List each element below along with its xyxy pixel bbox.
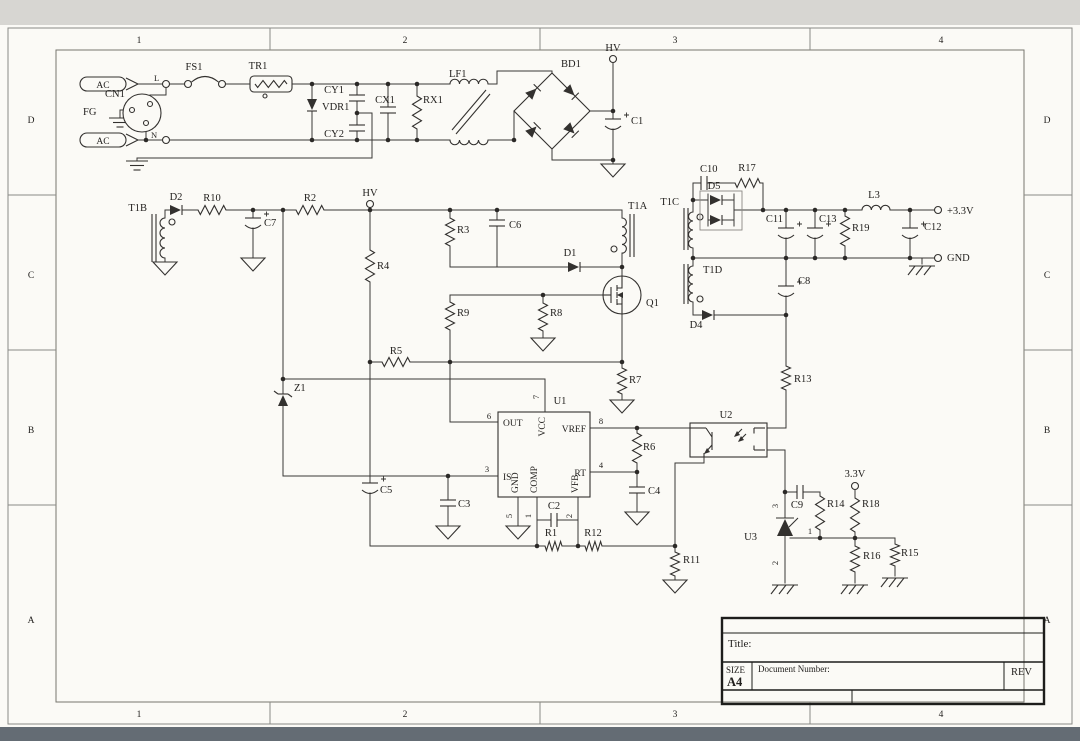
label-q1: Q1 <box>646 298 659 309</box>
label-t1c: T1C <box>660 197 679 208</box>
label-r3: R3 <box>457 225 469 236</box>
label-r5: R5 <box>390 346 402 357</box>
label-r2: R2 <box>304 193 316 204</box>
zone-label: 1 <box>137 710 142 720</box>
label-c13: C13 <box>819 214 837 225</box>
label-r19: R19 <box>852 223 870 234</box>
zone-label: C <box>28 271 34 281</box>
label-c8: C8 <box>798 276 810 287</box>
zone-label: 4 <box>939 36 944 46</box>
zone-label: 2 <box>403 710 408 720</box>
label-out_gnd: GND <box>947 253 970 264</box>
label-u1_gnd: GND <box>511 472 521 493</box>
label-term_n: N <box>151 130 157 140</box>
label-c10: C10 <box>700 164 718 175</box>
label-cx1: CX1 <box>375 95 395 106</box>
zone-label: A <box>28 616 35 626</box>
label-r1: R1 <box>545 528 557 539</box>
label-u1_vref: VREF <box>562 425 586 435</box>
label-c6: C6 <box>509 220 521 231</box>
label-u1_p5: 5 <box>504 514 514 518</box>
label-d4: D4 <box>690 320 704 331</box>
label-fg: FG <box>83 107 97 118</box>
label-u2: U2 <box>720 410 733 421</box>
label-bias_33: 3.3V <box>845 469 866 480</box>
label-hv_aux: HV <box>362 188 378 199</box>
label-cn1: CN1 <box>105 89 125 100</box>
zone-label: D <box>1044 116 1051 126</box>
label-c2: C2 <box>548 501 560 512</box>
label-r6: R6 <box>643 442 655 453</box>
label-t1b: T1B <box>128 203 147 214</box>
label-r12: R12 <box>584 528 602 539</box>
label-c7: C7 <box>264 218 276 229</box>
label-u3_p3: 3 <box>770 504 780 508</box>
label-r8: R8 <box>550 308 562 319</box>
label-out_33: +3.3V <box>947 206 974 217</box>
label-hv_bridge: HV <box>605 43 621 54</box>
label-d1: D1 <box>564 248 577 259</box>
scan-margin-bottom <box>0 727 1080 741</box>
label-u1_p6: 6 <box>487 411 491 421</box>
label-d2: D2 <box>170 192 183 203</box>
label-r7: R7 <box>629 375 641 386</box>
label-d5: D5 <box>708 181 721 192</box>
label-u3: U3 <box>744 532 757 543</box>
label-u1_vfb: VFB <box>571 475 581 493</box>
label-rx1: RX1 <box>423 95 443 106</box>
label-r10: R10 <box>203 193 221 204</box>
label-u1_p8: 8 <box>599 416 603 426</box>
label-l3: L3 <box>868 190 880 201</box>
zone-label: 2 <box>403 36 408 46</box>
label-fs1: FS1 <box>186 62 203 73</box>
schematic-scan-page: 1 2 3 4 1 2 3 4 D C B A D C B A ACACLNCN… <box>0 0 1080 741</box>
zone-label: D <box>28 116 35 126</box>
label-r15: R15 <box>901 548 919 559</box>
label-vdr1: VDR1 <box>322 102 349 113</box>
label-r9: R9 <box>457 308 469 319</box>
label-c11: C11 <box>766 214 783 225</box>
label-c9: C9 <box>791 500 803 511</box>
label-t1a: T1A <box>628 201 648 212</box>
zone-label: 3 <box>673 36 678 46</box>
label-r17: R17 <box>738 163 756 174</box>
label-u1_p2: 2 <box>564 514 574 518</box>
zone-label: C <box>1044 271 1050 281</box>
label-u3_p1: 1 <box>808 526 812 536</box>
label-z1: Z1 <box>294 383 306 394</box>
label-c3: C3 <box>458 499 470 510</box>
zone-label: B <box>1044 426 1050 436</box>
label-c4: C4 <box>648 486 661 497</box>
label-u1_p1: 1 <box>523 514 533 518</box>
document-number-label: Document Number: <box>758 664 830 674</box>
label-c5: C5 <box>380 485 392 496</box>
label-c12: C12 <box>924 222 942 233</box>
label-u1_out: OUT <box>503 419 523 429</box>
label-cy1: CY1 <box>324 85 344 96</box>
label-r18: R18 <box>862 499 880 510</box>
label-u1: U1 <box>554 396 567 407</box>
label-u3_p2: 2 <box>770 561 780 565</box>
rev-label: REV <box>1011 667 1032 678</box>
label-u1_p7: 7 <box>531 395 541 399</box>
label-u1_vcc: VCC <box>538 417 548 437</box>
zone-label: 1 <box>137 36 142 46</box>
label-r16: R16 <box>863 551 881 562</box>
zone-label: B <box>28 426 34 436</box>
schematic-canvas: 1 2 3 4 1 2 3 4 D C B A D C B A ACACLNCN… <box>0 0 1080 741</box>
label-c1: C1 <box>631 116 643 127</box>
paper-background <box>0 0 1080 741</box>
label-t1d: T1D <box>703 265 723 276</box>
size-value: A4 <box>727 675 743 689</box>
label-r14: R14 <box>827 499 845 510</box>
label-lf1: LF1 <box>449 69 467 80</box>
label-term_l: L <box>154 73 159 83</box>
size-label: SIZE <box>726 665 746 675</box>
zone-label: 3 <box>673 710 678 720</box>
label-ac_n: AC <box>96 137 109 147</box>
scan-margin-top <box>0 0 1080 25</box>
label-r4: R4 <box>377 261 390 272</box>
label-bd1: BD1 <box>561 59 581 70</box>
label-r13: R13 <box>794 374 812 385</box>
label-cy2: CY2 <box>324 129 344 140</box>
zone-label: 4 <box>939 710 944 720</box>
label-u1_p3: 3 <box>485 464 489 474</box>
label-r11: R11 <box>683 555 700 566</box>
title-label: Title: <box>728 638 751 650</box>
label-tr1: TR1 <box>249 61 268 72</box>
label-u1_comp: COMP <box>530 466 540 493</box>
